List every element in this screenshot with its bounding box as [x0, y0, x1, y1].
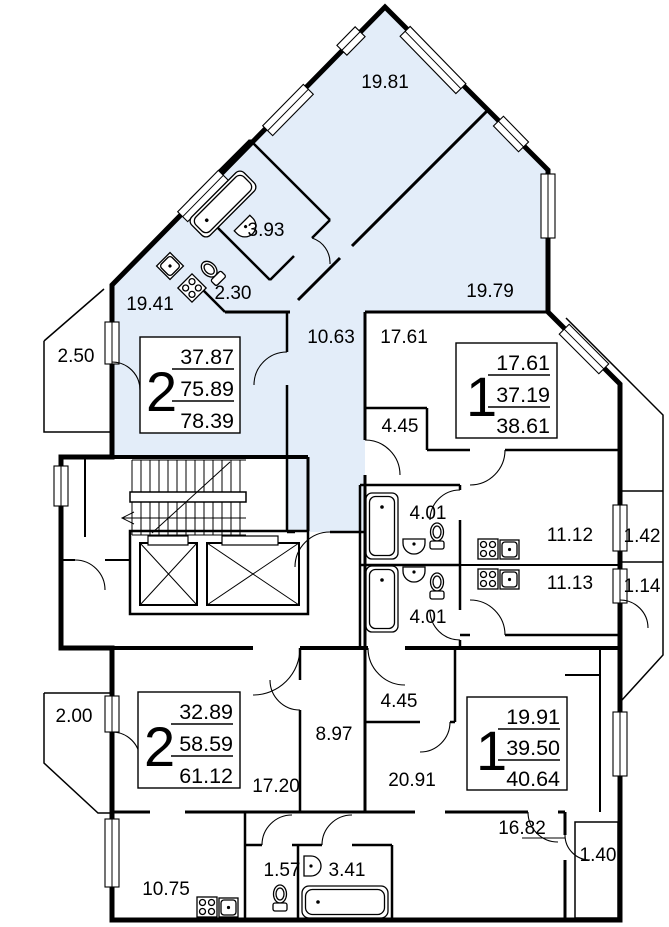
total-area: 78.39 — [180, 409, 234, 433]
room-label: 1.57 — [264, 860, 301, 881]
room-label: 1.42 — [624, 526, 661, 547]
toilet-icon — [273, 885, 287, 911]
toilet-icon — [430, 523, 444, 549]
sink-icon — [403, 567, 425, 582]
window — [54, 466, 68, 506]
apartment-card: 1 17.61 37.19 38.61 — [456, 343, 557, 438]
room-label: 16.82 — [498, 818, 546, 839]
stove-icon — [478, 569, 498, 589]
total-area: 38.61 — [496, 414, 550, 438]
staircase — [122, 460, 246, 535]
total-area: 61.12 — [179, 764, 233, 788]
sink-icon — [219, 898, 238, 917]
room-label: 3.41 — [329, 860, 366, 881]
window — [105, 819, 119, 887]
room-label: 11.12 — [547, 525, 593, 546]
sink-icon — [500, 570, 519, 589]
floor-plan-page: 2 37.87 75.89 78.39 1 17.61 37.19 38.61 … — [0, 0, 669, 927]
total-area: 40.64 — [506, 767, 560, 791]
sink-icon — [403, 539, 425, 554]
room-label: 10.63 — [307, 327, 355, 348]
apartment-card: 1 19.91 39.50 40.64 — [467, 697, 567, 791]
window — [613, 712, 627, 776]
floor-area: 58.59 — [179, 732, 233, 756]
room-label: 1.14 — [624, 576, 661, 597]
living-area: 17.61 — [496, 351, 550, 375]
stove-icon — [478, 539, 498, 559]
floor-plan-drawing: 2 37.87 75.89 78.39 1 17.61 37.19 38.61 … — [0, 0, 669, 927]
living-area: 32.89 — [179, 700, 233, 724]
room-label: 2.00 — [56, 706, 93, 727]
room-label: 19.81 — [361, 72, 409, 93]
floor-area: 75.89 — [180, 377, 234, 401]
bathtub-icon — [366, 493, 398, 559]
room-label: 3.93 — [248, 220, 285, 241]
room-label: 19.79 — [466, 281, 514, 302]
window — [105, 322, 119, 364]
toilet-icon — [430, 573, 444, 599]
room-label: 4.45 — [382, 416, 419, 437]
room-label: 2.30 — [215, 283, 252, 304]
room-label: 4.01 — [410, 503, 447, 524]
apartment-card: 2 37.87 75.89 78.39 — [140, 337, 240, 433]
rooms-count: 2 — [144, 715, 175, 778]
bathtub-icon — [366, 566, 398, 632]
room-label: 20.91 — [388, 770, 436, 791]
living-area: 19.91 — [506, 705, 560, 729]
stove-icon — [197, 897, 217, 917]
floor-area: 39.50 — [506, 736, 560, 760]
bathtub-icon — [302, 886, 388, 918]
room-label: 17.20 — [252, 776, 300, 797]
room-label: 10.75 — [142, 879, 190, 900]
room-label: 17.61 — [380, 327, 428, 348]
room-label: 4.45 — [381, 691, 418, 712]
window — [541, 174, 555, 238]
window — [105, 696, 119, 732]
living-area: 37.87 — [180, 345, 234, 369]
room-label: 8.97 — [316, 724, 353, 745]
room-label: 11.13 — [547, 573, 593, 594]
room-label: 19.41 — [126, 294, 174, 315]
sink-icon — [500, 540, 519, 559]
floor-area: 37.19 — [496, 383, 550, 407]
elevator-shafts — [130, 531, 308, 614]
room-label: 2.50 — [58, 346, 95, 367]
room-label: 1.40 — [580, 845, 617, 866]
apartment-card: 2 32.89 58.59 61.12 — [138, 692, 240, 788]
room-label: 4.01 — [410, 607, 447, 628]
window — [559, 324, 608, 373]
